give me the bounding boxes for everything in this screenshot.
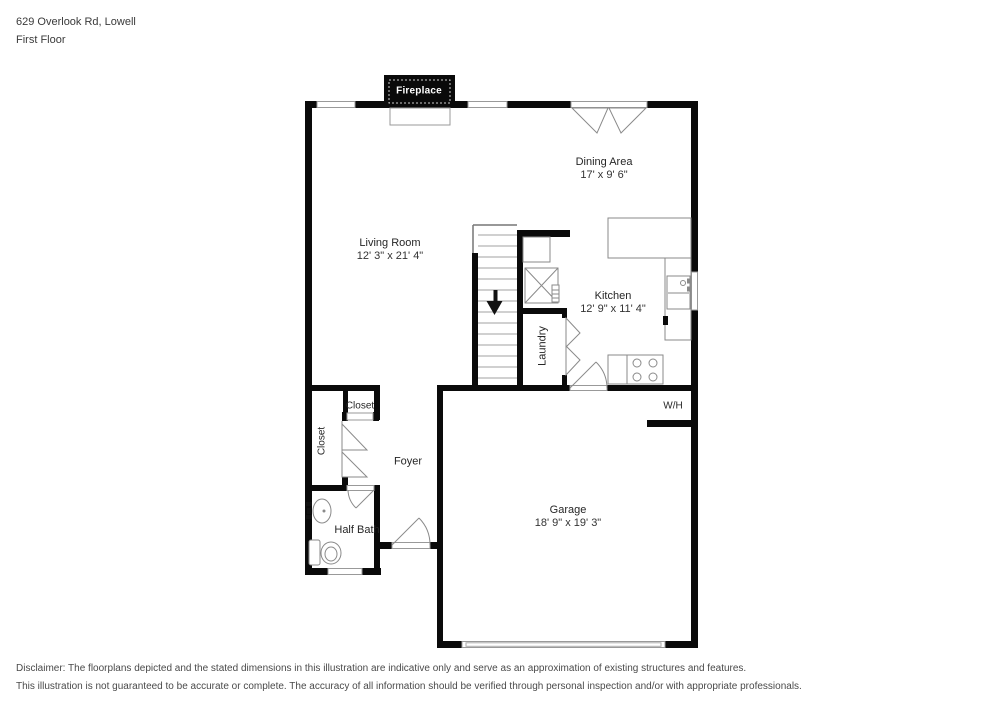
wall-segment <box>517 308 567 314</box>
toilet-bowl-inner <box>325 547 337 561</box>
door-opening <box>570 386 607 391</box>
garage-label: Garage 18' 9" x 19' 3" <box>535 504 601 530</box>
garage-entry-door <box>570 362 607 391</box>
bifold-leaf <box>566 318 580 347</box>
faucet-mark <box>306 515 312 519</box>
room-dims: 17' x 9' 6" <box>576 169 633 182</box>
fireplace <box>384 75 455 125</box>
toilet <box>309 540 341 565</box>
entry-closet-opening <box>347 413 373 420</box>
room-dims: 12' 3" x 21' 4" <box>357 250 423 263</box>
front-door <box>392 518 430 549</box>
wall-segment <box>437 385 570 391</box>
foyer-label: Foyer <box>394 456 422 469</box>
window <box>468 102 507 108</box>
window <box>317 102 355 108</box>
door-swing-arc <box>419 518 430 545</box>
toilet-tank <box>309 540 320 565</box>
window <box>692 272 698 310</box>
wall-segment <box>647 420 691 427</box>
wall-segment <box>665 641 698 648</box>
faucet-mark <box>306 502 312 506</box>
fireplace-hearth <box>390 108 450 125</box>
wall-stub <box>562 308 567 318</box>
kitchen-counter-top <box>608 218 691 258</box>
arrow-head <box>487 301 503 315</box>
wall-segment <box>430 542 443 549</box>
entry-closet-label: Closet <box>346 400 374 413</box>
closet-bifold-doors <box>342 421 367 477</box>
disclaimer-line-1: Disclaimer: The floorplans depicted and … <box>16 663 746 674</box>
room-dims: 12' 9" x 11' 4" <box>580 303 646 316</box>
fireplace-label: Fireplace <box>396 86 442 97</box>
living-room-label: Living Room 12' 3" x 21' 4" <box>357 237 423 263</box>
wall-segment <box>305 485 347 491</box>
wall-segment <box>305 385 380 391</box>
door-leaf <box>392 518 419 545</box>
stove <box>608 355 663 384</box>
wall-segment <box>691 310 698 648</box>
dining-area-label: Dining Area 17' x 9' 6" <box>576 156 633 182</box>
faucet-mark <box>307 508 311 514</box>
wall-segment <box>607 385 698 391</box>
wall-segment <box>437 385 443 648</box>
wall-segment <box>507 101 571 108</box>
room-name: Garage <box>535 504 601 517</box>
half-bath-door <box>347 486 374 509</box>
wall-stub <box>562 375 567 385</box>
kitchen-sink <box>667 276 691 309</box>
hall-closet-label: Closet <box>316 427 329 455</box>
wall-segment <box>380 542 392 549</box>
sink-bowl <box>313 499 331 523</box>
faucet-handle <box>688 279 691 283</box>
wall-stub <box>373 412 379 421</box>
floorplan-page: 629 Overlook Rd, Lowell First Floor <box>0 0 1000 707</box>
bifold-leaf <box>566 346 580 375</box>
pantry-cabinet <box>523 237 550 262</box>
counter-tick <box>663 316 668 325</box>
stair-direction-arrow <box>487 290 503 315</box>
room-name: Living Room <box>357 237 423 250</box>
door-opening <box>571 102 647 108</box>
bifold-leaf <box>342 452 367 477</box>
wall-segment <box>647 101 698 108</box>
wall-segment <box>472 253 478 390</box>
stair-edge <box>473 225 517 253</box>
door-leaf <box>609 108 646 133</box>
wall-stub <box>342 477 348 486</box>
wall-segment <box>517 230 570 237</box>
room-name: Dining Area <box>576 156 633 169</box>
sink-drain <box>323 510 325 512</box>
bifold-leaf <box>342 424 367 450</box>
half-bath-label: Half Bath <box>334 523 380 537</box>
disclaimer-line-2: This illustration is not guaranteed to b… <box>16 681 802 692</box>
room-name: Kitchen <box>580 290 646 303</box>
floorplan-drawing <box>0 0 1000 707</box>
staircase <box>473 225 517 378</box>
door-leaf <box>572 108 608 133</box>
laundry-bifold-doors <box>566 318 580 375</box>
garage-door-panel <box>466 643 661 647</box>
door-opening <box>392 543 430 549</box>
garage-door <box>462 642 665 648</box>
door-opening <box>347 486 374 491</box>
laundry-label: Laundry <box>537 326 550 366</box>
water-heater-label: W/H <box>663 400 682 413</box>
door-swing-arc <box>596 362 607 388</box>
room-dims: 18' 9" x 19' 3" <box>535 517 601 530</box>
wall-segment <box>691 101 698 272</box>
door-leaf <box>356 490 374 508</box>
window <box>328 569 362 575</box>
faucet-handle <box>688 287 691 291</box>
appliance-box <box>525 268 559 303</box>
kitchen-label: Kitchen 12' 9" x 11' 4" <box>580 290 646 316</box>
patio-double-door <box>571 102 647 134</box>
door-swing-arc <box>348 490 356 508</box>
